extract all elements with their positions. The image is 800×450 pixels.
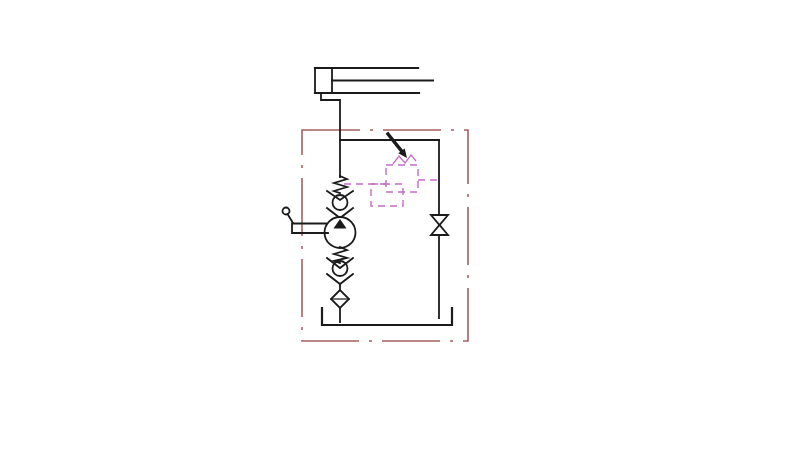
lever-shaft bbox=[288, 214, 294, 223]
relief-valve-body-icon bbox=[371, 184, 403, 206]
spring-check-valve-upper-icon bbox=[327, 176, 353, 218]
arrow-shaft bbox=[388, 134, 402, 152]
valve-triangle-top bbox=[431, 215, 448, 225]
cylinder-piston bbox=[315, 68, 332, 93]
circuit-lines bbox=[283, 68, 453, 325]
suction-filter-icon bbox=[331, 290, 349, 322]
single-acting-cylinder-icon bbox=[315, 68, 433, 93]
adjustment-arrow-icon bbox=[388, 134, 407, 158]
shut-off-valve-icon bbox=[431, 215, 448, 235]
hydraulic-schematic bbox=[0, 0, 800, 450]
hand-lever-icon bbox=[292, 224, 328, 234]
pressure-line bbox=[321, 93, 340, 177]
lever-knob bbox=[283, 208, 290, 215]
spring-check-valve-lower-icon bbox=[327, 247, 353, 290]
reservoir-tank-icon bbox=[322, 308, 452, 325]
adjustable-relief-valve-icon bbox=[386, 165, 418, 192]
relief-valve-group bbox=[344, 155, 439, 206]
valve-triangle-bottom bbox=[431, 225, 448, 235]
schematic-canvas bbox=[0, 0, 800, 450]
